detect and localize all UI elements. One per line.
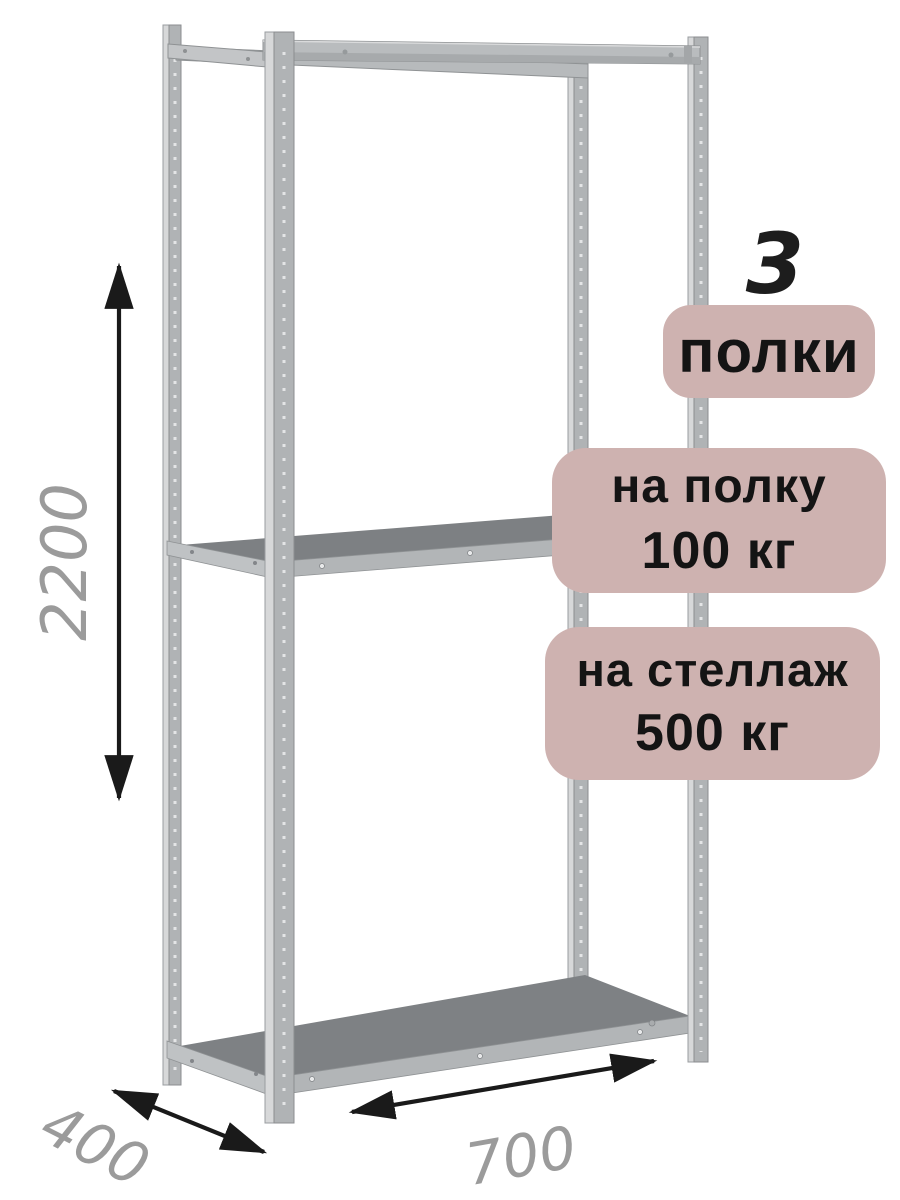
rack-top-beam-left-side xyxy=(168,44,267,67)
rack-bottom-shelf xyxy=(167,975,690,1096)
rack-load-badge: на стеллаж 500 кг xyxy=(545,627,880,780)
shelf-count-number: 3 xyxy=(715,222,835,306)
rack-load-value: 500 кг xyxy=(545,700,880,768)
rack-load-text: на стеллаж xyxy=(545,639,880,700)
product-image-canvas: 2200 400 700 3 полки на полку 100 кг на … xyxy=(0,0,900,1200)
shelf-count-label: полки xyxy=(663,317,875,386)
shelf-load-badge: на полку 100 кг xyxy=(552,448,886,593)
shelf-load-text: на полку xyxy=(552,456,886,518)
rack-post-front-left xyxy=(265,32,294,1123)
shelf-count-badge: полки xyxy=(663,305,875,398)
rack-top-beam-front xyxy=(263,40,700,64)
height-dimension-label: 2200 xyxy=(23,472,107,652)
rack-middle-shelf xyxy=(167,512,600,578)
shelf-load-value: 100 кг xyxy=(552,518,886,586)
shelving-rack-illustration xyxy=(0,0,900,1200)
